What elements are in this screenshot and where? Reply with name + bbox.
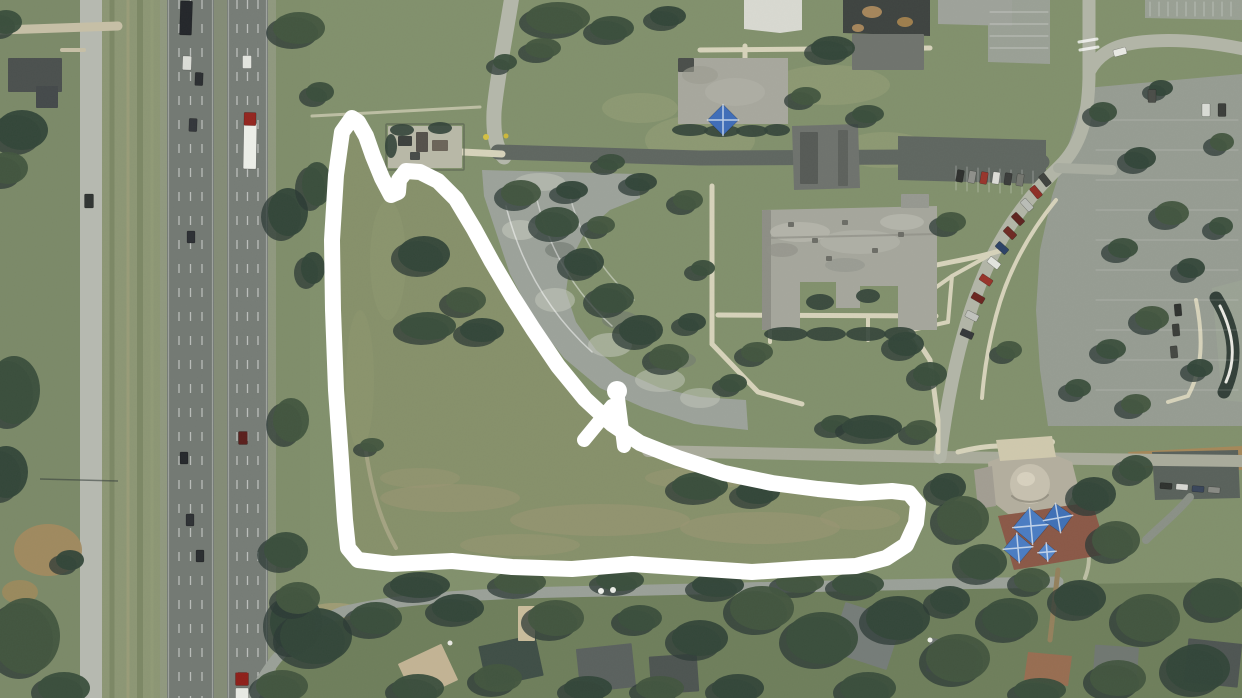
- photo-grain-overlay: [0, 0, 1242, 698]
- aerial-photo: [0, 0, 1242, 698]
- aerial-map-canvas[interactable]: [0, 0, 1242, 698]
- annotation-arrow-tip: [607, 381, 627, 401]
